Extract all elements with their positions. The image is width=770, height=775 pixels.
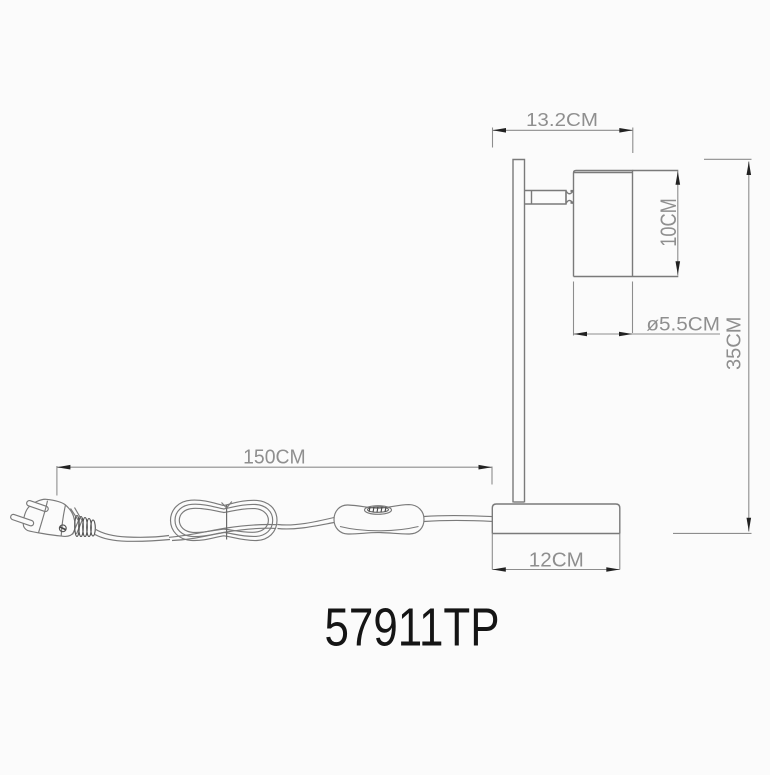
svg-text:12CM: 12CM [529,550,584,572]
svg-text:10CM: 10CM [656,198,681,247]
svg-text:57911TP: 57911TP [325,598,500,657]
svg-text:150CM: 150CM [243,447,306,469]
svg-text:ø5.5CM: ø5.5CM [646,315,720,336]
svg-text:13.2CM: 13.2CM [526,110,598,130]
svg-text:35CM: 35CM [723,317,745,371]
